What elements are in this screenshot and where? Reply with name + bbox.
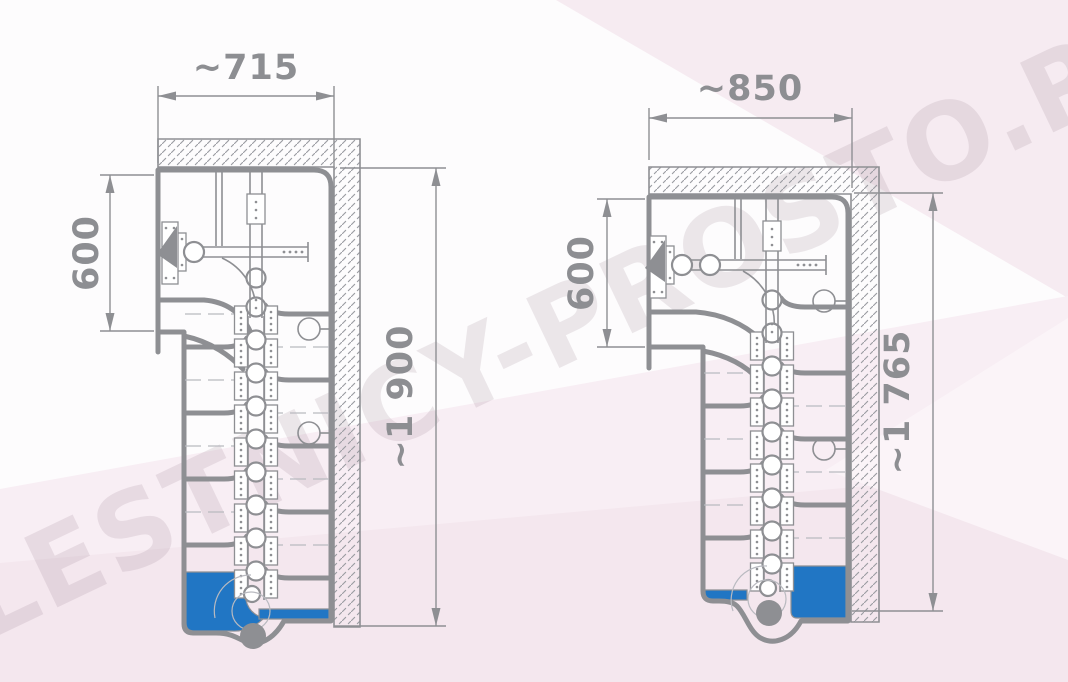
newel-post-left-plan (240, 623, 266, 649)
dim-label-width-left: ~715 (193, 48, 299, 88)
dim-label-opening-left: 600 (67, 215, 107, 291)
newel-post-right-plan (756, 600, 782, 626)
dim-label-length-left: ~1 900 (381, 325, 421, 470)
top-landing-left-plan (157, 172, 308, 318)
dim-label-width-right: ~850 (697, 69, 803, 109)
dim-label-length-right: ~1 765 (878, 330, 918, 475)
stairs-technical-drawing: LESTNICY-PROSTO.RU (0, 0, 1068, 682)
dim-label-opening-right: 600 (562, 235, 602, 311)
dim-opening-left-plan: 600 (67, 175, 154, 331)
